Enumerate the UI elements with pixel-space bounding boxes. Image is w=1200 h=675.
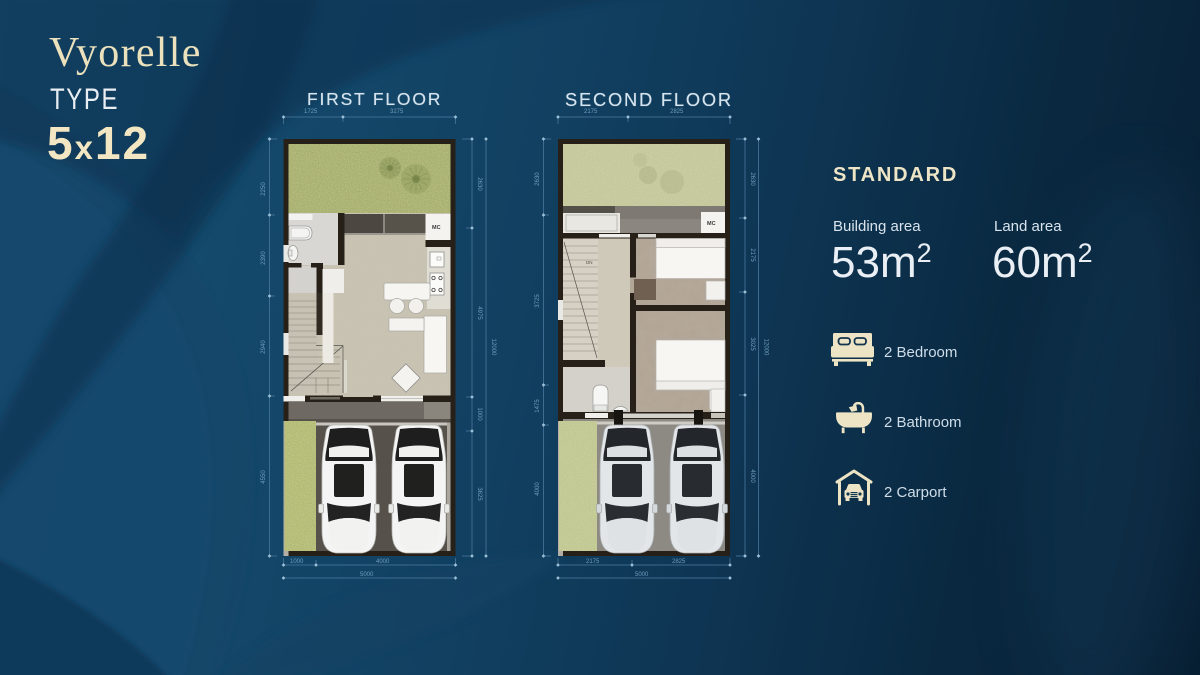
svg-text:2825: 2825 [670, 109, 684, 115]
svg-text:1725: 1725 [304, 109, 318, 115]
svg-text:5000: 5000 [635, 572, 649, 578]
svg-text:5000: 5000 [360, 572, 374, 578]
svg-text:4550: 4550 [261, 470, 267, 484]
svg-text:2825: 2825 [672, 559, 686, 565]
svg-text:2390: 2390 [261, 251, 267, 265]
svg-text:4000: 4000 [535, 482, 541, 496]
svg-text:MC: MC [707, 221, 716, 227]
svg-text:3275: 3275 [390, 109, 404, 115]
svg-text:2630: 2630 [476, 177, 482, 191]
svg-text:2175: 2175 [584, 109, 598, 115]
svg-text:MC: MC [432, 225, 441, 231]
svg-text:1000: 1000 [290, 559, 304, 565]
svg-text:1475: 1475 [535, 399, 541, 413]
svg-text:2175: 2175 [586, 559, 600, 565]
svg-text:3025: 3025 [749, 337, 755, 351]
svg-text:2630: 2630 [749, 172, 755, 186]
svg-text:12000: 12000 [763, 339, 769, 356]
svg-text:DN: DN [586, 260, 593, 265]
svg-text:2940: 2940 [261, 340, 267, 354]
svg-text:2175: 2175 [749, 248, 755, 262]
svg-text:4000: 4000 [376, 559, 390, 565]
svg-text:4975: 4975 [476, 306, 482, 320]
svg-text:4000: 4000 [749, 469, 755, 483]
svg-text:2250: 2250 [261, 182, 267, 196]
svg-text:3725: 3725 [535, 294, 541, 308]
svg-text:12000: 12000 [490, 339, 496, 356]
svg-text:2630: 2630 [535, 172, 541, 186]
svg-text:3625: 3625 [476, 487, 482, 501]
svg-text:1000: 1000 [476, 407, 482, 421]
